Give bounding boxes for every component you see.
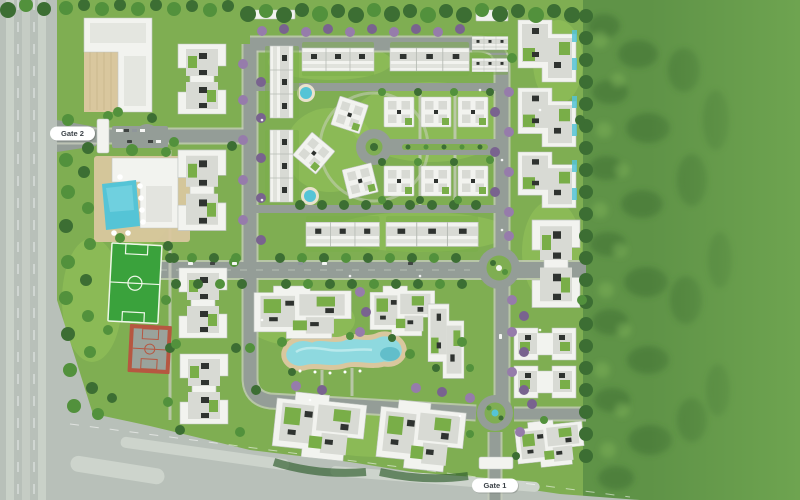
clubhouse-pool [94,156,190,242]
villa [458,166,488,196]
townhouse-row [302,42,374,76]
villa [421,166,451,196]
football-pitch [108,243,162,324]
gate-1-canopy [479,457,513,469]
townhouse-row [265,130,299,202]
villa [458,97,488,127]
south-roundabout [477,395,513,431]
gate-2-text: Gate 2 [61,129,84,138]
site-plan: Gate 2 Gate 1 [0,0,800,500]
gate-1-text: Gate 1 [484,481,507,490]
townhouse-row [306,216,379,252]
townhouse-row [390,42,469,76]
townhouse-row [265,46,299,118]
villa [384,97,414,127]
townhouse-row [386,216,478,252]
townhouse-row [472,33,508,53]
central-roundabout [478,247,520,289]
townhouse-row [472,55,508,75]
villa [421,97,451,127]
east-forest [583,0,800,500]
gate-2-canopy [97,119,109,153]
masterplan-rendering: Gate 2 Gate 1 [0,0,800,500]
villa [384,166,414,196]
